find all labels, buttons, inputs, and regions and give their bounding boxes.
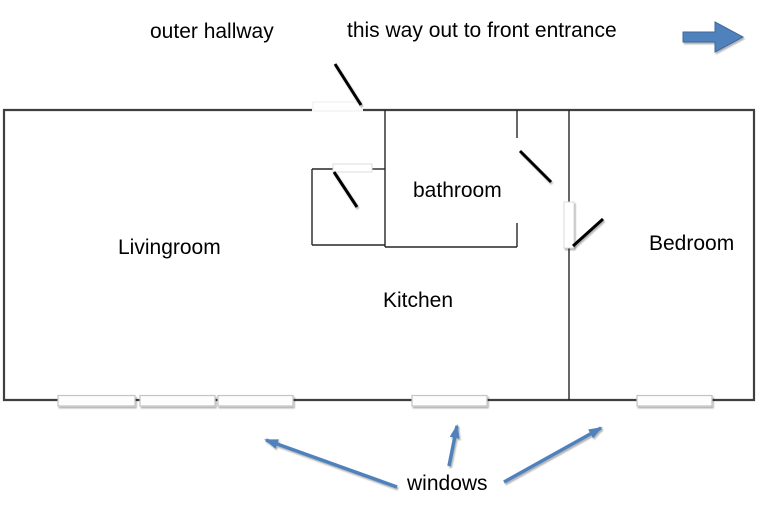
bathroom-door-swing bbox=[520, 151, 551, 182]
bedroom-door-opening bbox=[564, 202, 574, 248]
hallway-door-swing bbox=[335, 64, 361, 105]
window-arrow-right-icon bbox=[504, 428, 601, 482]
door-swings bbox=[334, 64, 603, 246]
livingroom-label: Livingroom bbox=[118, 236, 221, 260]
door-opening-markers bbox=[313, 102, 574, 248]
front-entrance-arrow-icon bbox=[683, 22, 743, 52]
window-arrow-middle-icon bbox=[449, 426, 457, 466]
interior-walls bbox=[312, 110, 569, 400]
hallway-door-opening bbox=[313, 102, 362, 111]
window-arrow-left-icon bbox=[266, 440, 397, 487]
window-livingroom-2 bbox=[140, 396, 215, 407]
window-bedroom bbox=[637, 396, 712, 407]
outer-walls bbox=[3, 109, 755, 401]
window-kitchen bbox=[412, 396, 487, 407]
closet-door-swing bbox=[334, 172, 357, 207]
bedroom-door-swing bbox=[573, 219, 603, 246]
bedroom-label: Bedroom bbox=[649, 232, 734, 256]
outer-hallway-label: outer hallway bbox=[150, 20, 274, 44]
floor-plan-canvas: outer hallway this way out to front entr… bbox=[0, 0, 779, 508]
front-entrance-label: this way out to front entrance bbox=[347, 19, 617, 43]
bathroom-label: bathroom bbox=[413, 179, 502, 203]
kitchen-label: Kitchen bbox=[383, 289, 453, 313]
closet-door-opening bbox=[333, 164, 372, 172]
windows-label: windows bbox=[407, 472, 488, 496]
window-livingroom-3 bbox=[218, 396, 293, 407]
window-livingroom-1 bbox=[58, 396, 135, 407]
